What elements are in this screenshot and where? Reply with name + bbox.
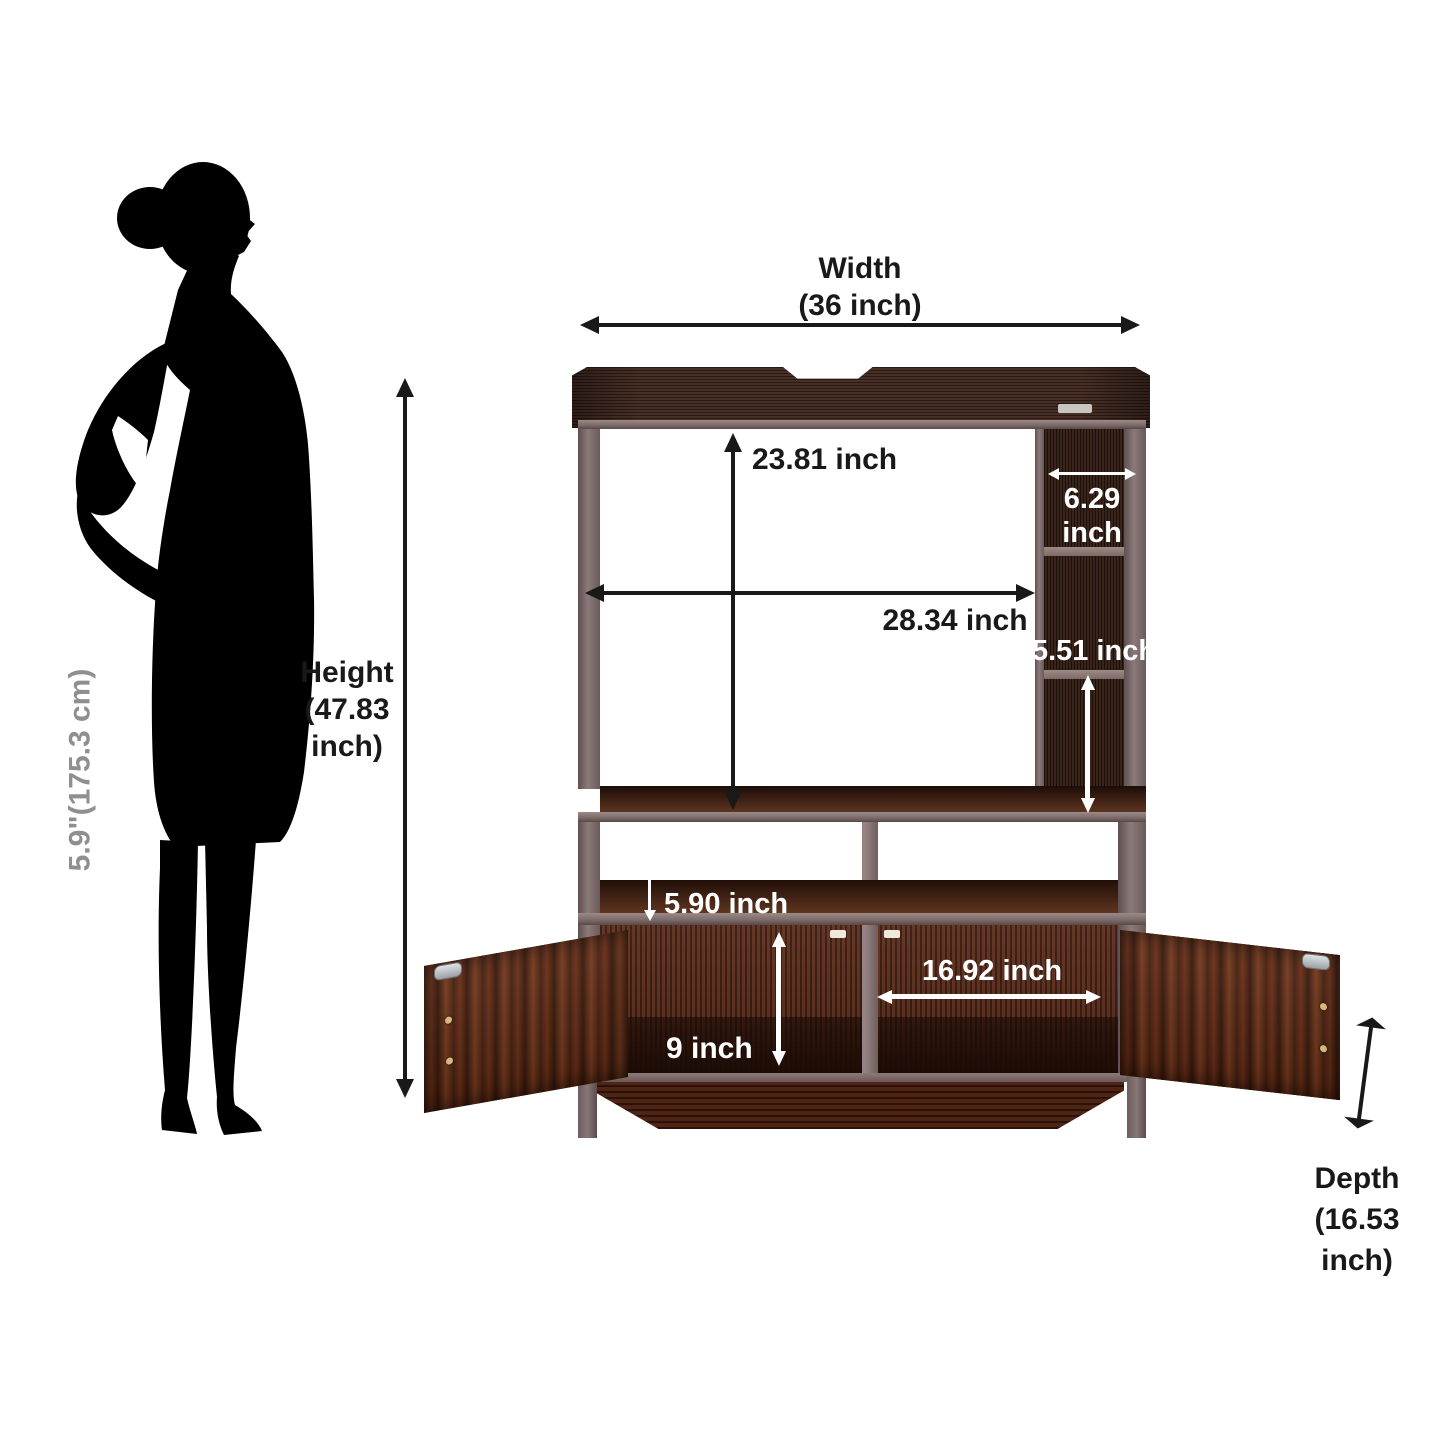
cubby-width-arrow xyxy=(1058,472,1126,475)
width-label-line1: Width xyxy=(798,250,921,287)
height-label-line3: inch) xyxy=(300,728,393,765)
width-label-line2: (36 inch) xyxy=(798,287,921,324)
cubby-width-label: 6.29 inch xyxy=(1062,482,1122,550)
crown-top-shelf xyxy=(572,367,1150,428)
door-screw xyxy=(445,1016,452,1024)
width-label: Width (36 inch) xyxy=(798,250,921,324)
depth-label-line3: inch) xyxy=(1314,1240,1399,1281)
door-screw xyxy=(1320,1045,1327,1053)
height-arrow xyxy=(403,396,407,1080)
middle-open-right xyxy=(878,822,1118,880)
tv-opening-height-arrow xyxy=(731,451,735,792)
tv-shelf-front-edge xyxy=(578,812,1146,822)
left-side-panel xyxy=(578,429,600,789)
tv-opening-width-arrow xyxy=(603,591,1017,595)
silhouette-left-leg xyxy=(159,840,198,1134)
cubby-width-label-line2: inch xyxy=(1062,516,1122,550)
base-front-panel xyxy=(592,1082,1124,1129)
door-catch-left xyxy=(830,930,846,938)
cabinet-height-label: 9 inch xyxy=(666,1030,753,1067)
door-screw xyxy=(446,1057,453,1065)
middle-left-frame xyxy=(578,822,600,925)
cabinet-width-arrow xyxy=(891,994,1087,999)
height-label: Height (47.83 inch) xyxy=(300,654,393,765)
door-catch-right xyxy=(884,930,900,938)
middle-shelf-height-arrow xyxy=(648,833,651,911)
furniture-dimension-diagram: 5.9"(175.3 cm) xyxy=(0,0,1445,1445)
figure-height-label: 5.9"(175.3 cm) xyxy=(62,669,99,872)
cubby-width-label-line1: 6.29 xyxy=(1062,482,1122,516)
depth-label-line2: (16.53 xyxy=(1314,1199,1399,1240)
middle-right-frame xyxy=(1118,822,1146,925)
crown-front-edge xyxy=(578,420,1146,429)
middle-open-left xyxy=(600,822,862,880)
door-hinge-icon xyxy=(1302,953,1330,971)
right-leg xyxy=(1127,1073,1146,1138)
depth-arrow xyxy=(1357,1026,1373,1120)
cubby-height-arrow xyxy=(1085,689,1090,799)
width-arrow xyxy=(598,323,1122,327)
base-top-rail xyxy=(578,1073,1146,1082)
height-label-line2: (47.83 xyxy=(300,691,393,728)
middle-shelf-height-label: 5.90 inch xyxy=(664,886,788,923)
brand-sticker xyxy=(1058,404,1092,413)
cubby-height-label: 5.51 inch xyxy=(1032,633,1156,670)
silhouette-body xyxy=(152,236,314,847)
cabinet-door-right[interactable] xyxy=(1120,930,1340,1100)
depth-label-line1: Depth xyxy=(1314,1158,1399,1199)
right-side-panel xyxy=(1124,429,1146,789)
silhouette-right-leg xyxy=(205,840,262,1135)
cabinet-center-divider xyxy=(862,925,878,1073)
tv-opening-width-label: 28.34 inch xyxy=(882,602,1027,639)
tv-shelf-surface xyxy=(600,786,1146,812)
cubby-left-edge xyxy=(1035,429,1044,789)
height-label-line1: Height xyxy=(300,654,393,691)
woman-silhouette xyxy=(58,140,318,1140)
cabinet-width-label: 16.92 inch xyxy=(922,953,1062,990)
tv-opening-height-label: 23.81 inch xyxy=(752,441,897,478)
depth-label: Depth (16.53 inch) xyxy=(1314,1158,1399,1281)
door-hinge-icon xyxy=(434,961,462,981)
door-screw xyxy=(1320,1003,1327,1011)
cabinet-height-arrow xyxy=(776,946,781,1052)
